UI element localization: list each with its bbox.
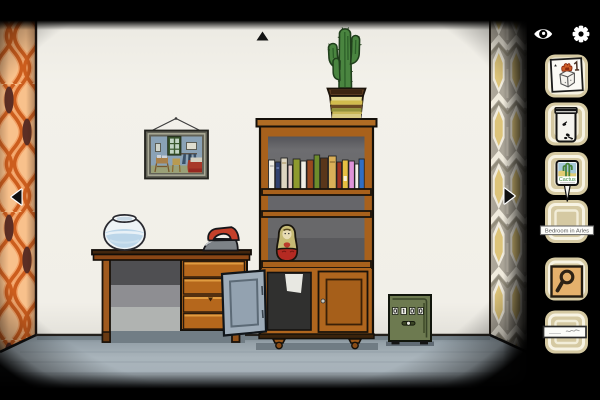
svg-text:Cactus: Cactus <box>559 177 576 183</box>
svg-text:Bedroom in Arles: Bedroom in Arles <box>545 228 589 234</box>
